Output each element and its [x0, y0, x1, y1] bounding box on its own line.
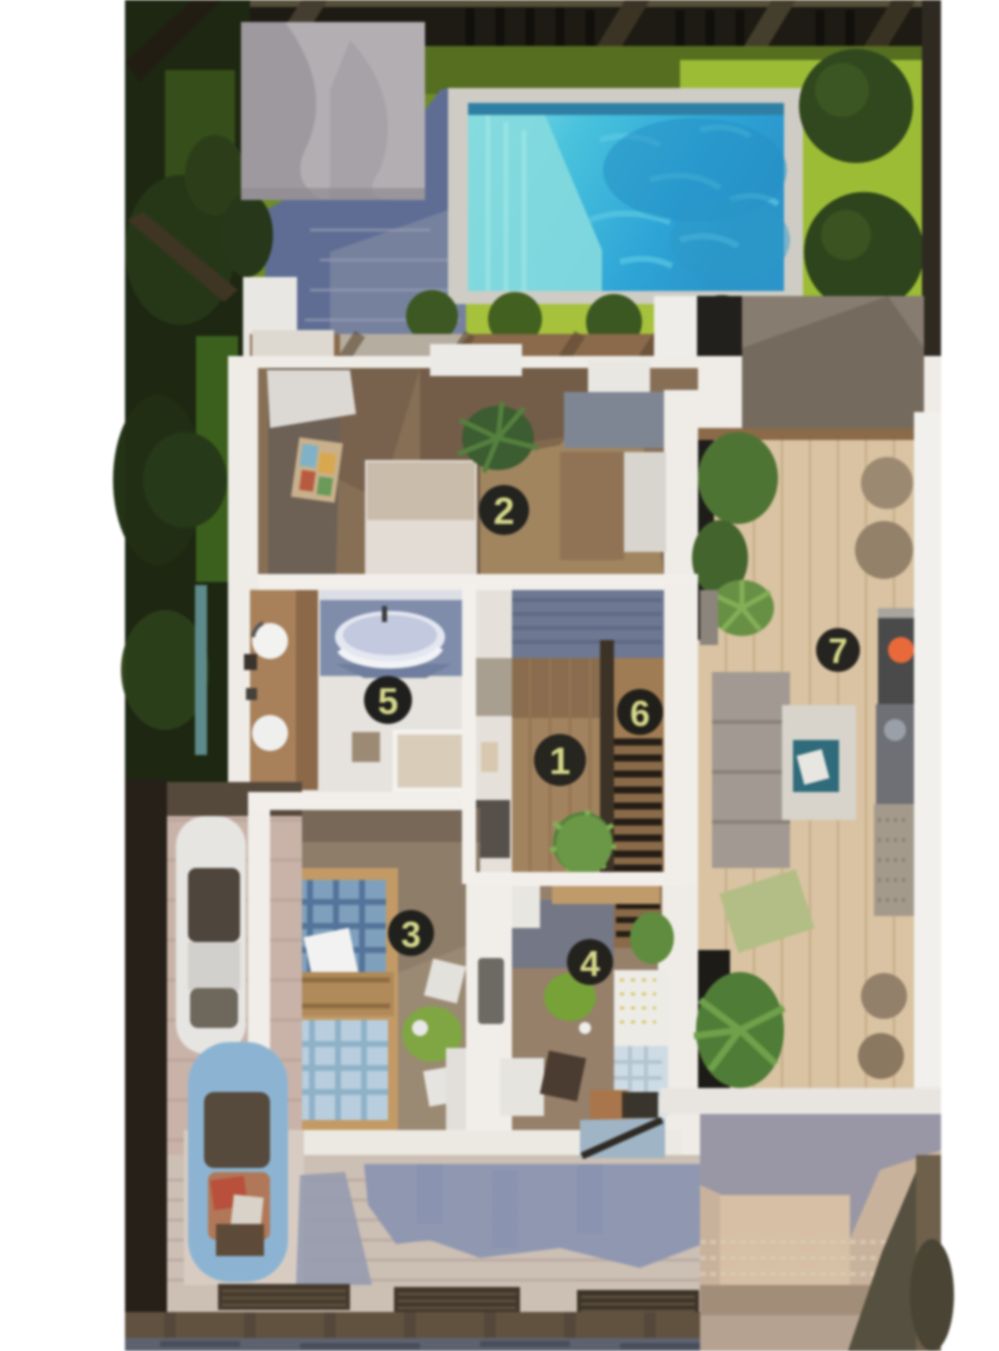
svg-text:4: 4	[580, 943, 600, 984]
svg-text:6: 6	[630, 693, 650, 734]
svg-text:3: 3	[401, 914, 421, 955]
svg-text:5: 5	[378, 681, 399, 722]
svg-text:7: 7	[828, 632, 847, 671]
svg-text:2: 2	[493, 491, 514, 533]
svg-text:1: 1	[549, 741, 570, 783]
